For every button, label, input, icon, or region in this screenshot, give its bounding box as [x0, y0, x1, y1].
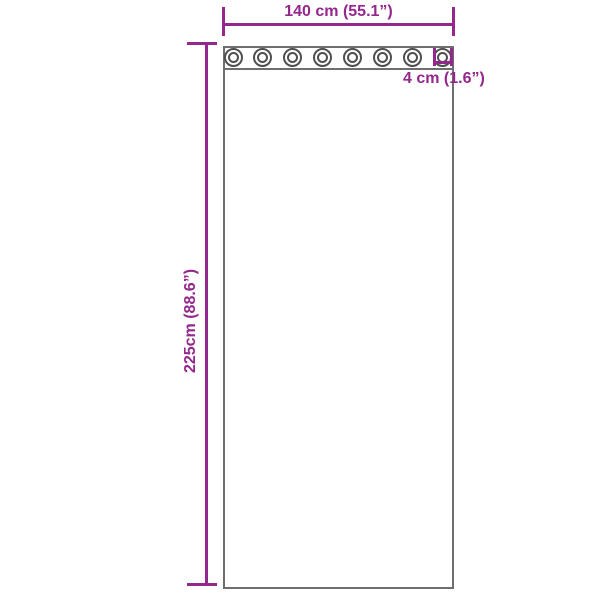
grommet-icon: [313, 48, 332, 67]
grommet-inner-ring: [257, 52, 268, 63]
height-dimension-cap-top: [187, 42, 217, 45]
grommet-inner-ring: [228, 52, 239, 63]
grommet-icon: [403, 48, 422, 67]
grommet-icon: [373, 48, 392, 67]
curtain-panel: [223, 46, 454, 589]
height-dimension-label: 225cm (88.6”): [182, 269, 200, 373]
grommet-icon: [224, 48, 243, 67]
grommet-inner-ring: [347, 52, 358, 63]
grommet-icon: [343, 48, 362, 67]
grommet-inner-ring: [287, 52, 298, 63]
width-dimension-line: [223, 23, 454, 26]
width-dimension-label: 140 cm (55.1”): [223, 3, 454, 21]
grommet-inner-ring: [407, 52, 418, 63]
dimension-diagram: 140 cm (55.1”) 225cm (88.6”) 4 cm (1.6”): [0, 0, 600, 600]
grommet-inner-ring: [317, 52, 328, 63]
height-dimension-cap-bottom: [187, 583, 217, 586]
grommet-dimension-label: 4 cm (1.6”): [403, 70, 485, 88]
height-dimension-line: [205, 43, 208, 585]
grommet-inner-ring: [377, 52, 388, 63]
grommet-dimension-line: [433, 61, 453, 64]
